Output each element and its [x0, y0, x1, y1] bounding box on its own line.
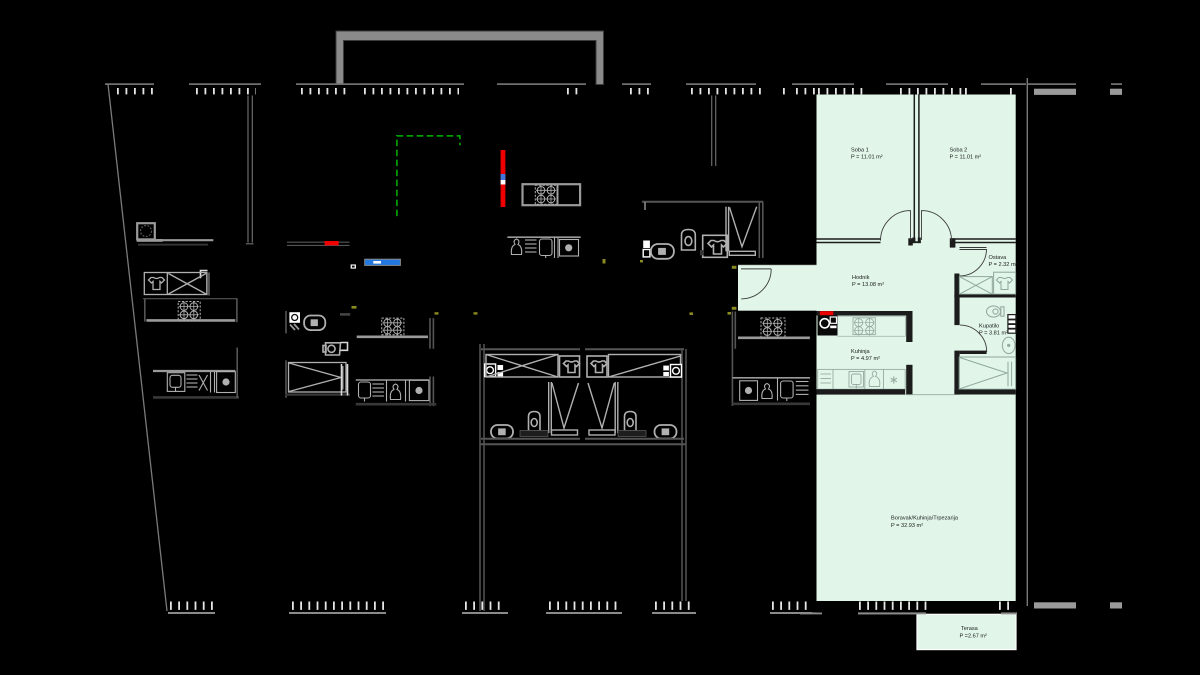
svg-text:P = 4.97 m²: P = 4.97 m² — [851, 356, 880, 362]
svg-text:P =2.67 m²: P =2.67 m² — [960, 634, 988, 640]
svg-text:P = 2.32 m²: P = 2.32 m² — [989, 262, 1018, 268]
svg-text:P = 3.81 m²: P = 3.81 m² — [979, 331, 1008, 337]
svg-text:Kupatilo: Kupatilo — [979, 324, 999, 330]
svg-text:Terasa: Terasa — [961, 626, 979, 632]
svg-text:Kuhinja: Kuhinja — [851, 349, 871, 355]
svg-text:P = 11.01 m²: P = 11.01 m² — [950, 155, 982, 161]
svg-text:P = 13.08 m²: P = 13.08 m² — [852, 282, 884, 288]
svg-text:Ostava: Ostava — [989, 255, 1008, 261]
svg-text:Soba 1: Soba 1 — [851, 148, 869, 154]
svg-text:P = 32.93 m²: P = 32.93 m² — [891, 523, 923, 529]
svg-text:Boravak/Kuhinja/Trpezarija: Boravak/Kuhinja/Trpezarija — [891, 516, 959, 522]
svg-text:Soba 2: Soba 2 — [950, 148, 968, 154]
svg-text:Hodnik: Hodnik — [852, 275, 870, 281]
svg-text:P = 11.01 m²: P = 11.01 m² — [851, 155, 883, 161]
